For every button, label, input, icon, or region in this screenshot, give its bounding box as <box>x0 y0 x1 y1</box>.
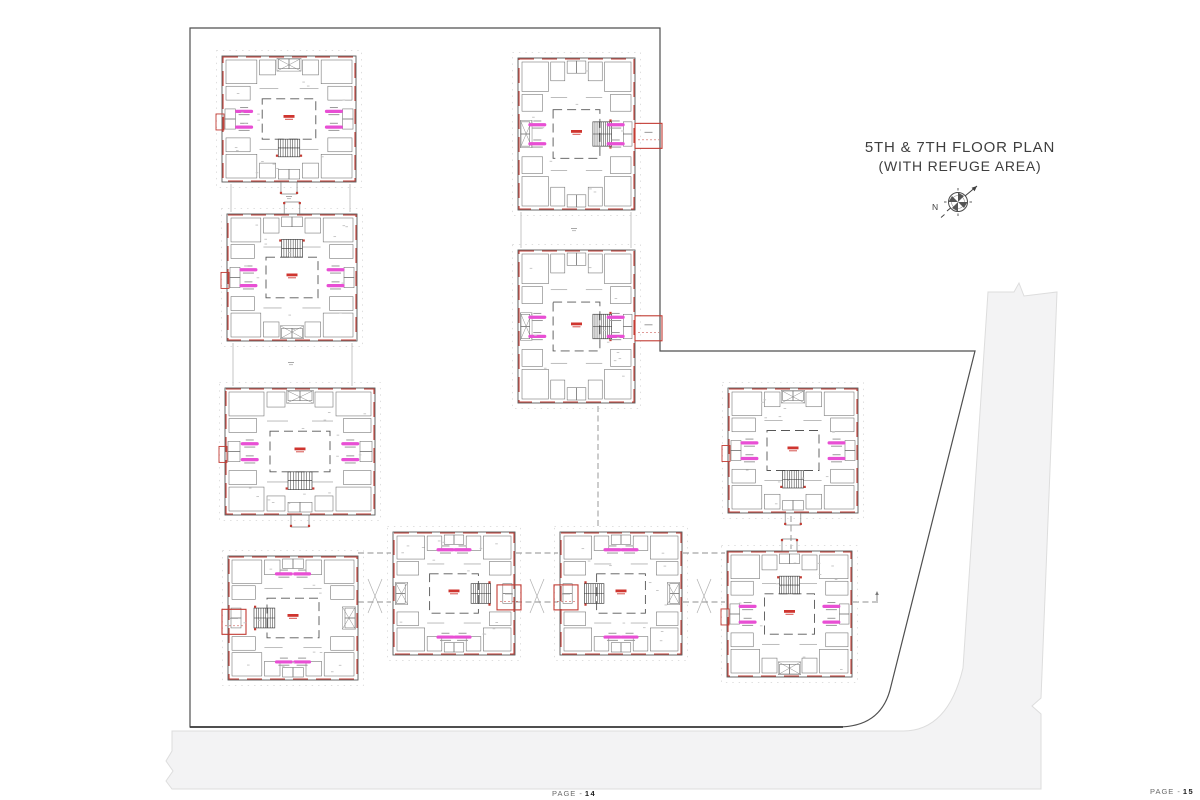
gap-dimension-mark <box>289 364 293 365</box>
building-block-6 <box>722 383 864 526</box>
footer-page-right: PAGE -15 <box>1150 787 1194 796</box>
building-block-3 <box>219 383 381 528</box>
building-block-2 <box>221 202 363 347</box>
page-number-right: 15 <box>1183 787 1194 796</box>
gap-dimension-mark <box>571 228 577 229</box>
building-block-10 <box>721 539 858 683</box>
building-block-4 <box>513 53 663 216</box>
page-title: 5TH & 7TH FLOOR PLAN <box>850 139 1070 157</box>
compass-north-label: N <box>932 202 938 212</box>
gap-dimension-mark <box>286 196 292 197</box>
compass-icon: N <box>924 177 996 227</box>
page-label-right: PAGE - <box>1150 787 1181 796</box>
floor-plan-drawing <box>0 0 1200 800</box>
building-block-1 <box>216 51 362 195</box>
building-block-7 <box>222 551 364 686</box>
title-block: 5TH & 7TH FLOOR PLAN (WITH REFUGE AREA) … <box>850 139 1070 232</box>
building-block-8 <box>388 527 522 661</box>
gap-dimension-mark <box>287 198 291 199</box>
page-number-left: 14 <box>585 789 596 798</box>
building-block-5 <box>513 245 663 409</box>
page-subtitle: (WITH REFUGE AREA) <box>850 158 1070 175</box>
compass-wrap: N <box>850 177 1070 232</box>
footer-page-left: PAGE -14 <box>552 789 596 798</box>
floor-plan-sheet: 5TH & 7TH FLOOR PLAN (WITH REFUGE AREA) … <box>0 0 1200 800</box>
gap-dimension-mark <box>288 362 294 363</box>
page-label-left: PAGE - <box>552 789 583 798</box>
gap-dimension-mark <box>572 230 576 231</box>
building-block-9 <box>554 527 688 661</box>
small-tick-arrow <box>875 591 879 595</box>
